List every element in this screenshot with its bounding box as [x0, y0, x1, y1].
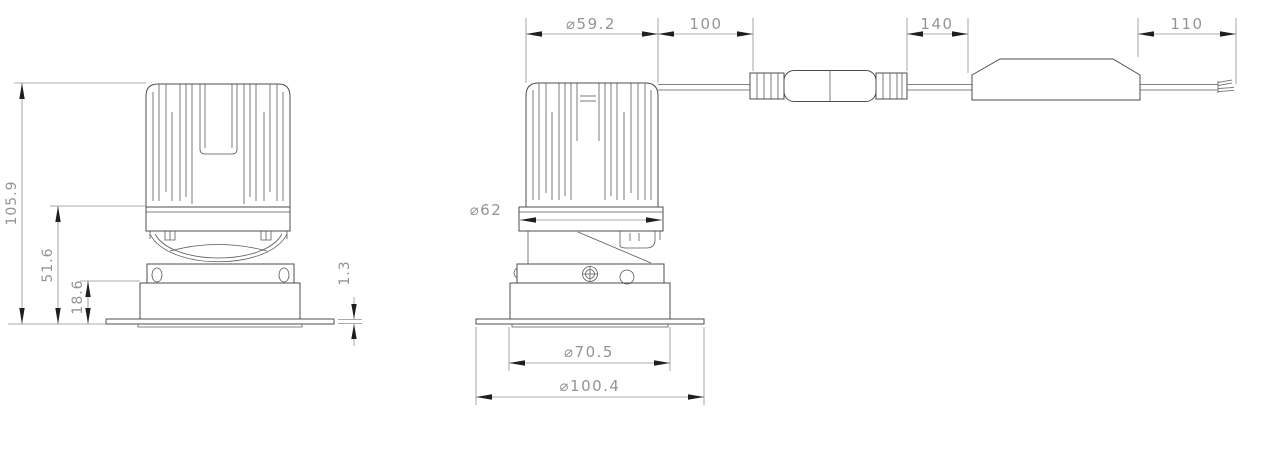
dim-output-lead: 110 [1170, 15, 1203, 33]
dim-body-diameter: ⌀62 [470, 201, 503, 219]
front-view [106, 84, 334, 327]
side-band [519, 207, 663, 231]
driver-box [972, 59, 1140, 100]
technical-drawing: ⌀59.2 100 140 110 105.9 51.6 18.6 1.3 ⌀6… [0, 0, 1281, 468]
cable-connector [750, 71, 907, 102]
cable-and-driver [658, 59, 1234, 102]
dim-cutout-diameter: ⌀70.5 [564, 343, 614, 361]
dim-driver-lead: 140 [920, 15, 953, 33]
dim-overall-height: 105.9 [4, 180, 20, 225]
output-lead-wire [1140, 80, 1234, 93]
drawing-canvas: ⌀59.2 100 140 110 105.9 51.6 18.6 1.3 ⌀6… [0, 0, 1281, 468]
side-mount-plate [514, 264, 664, 284]
side-flange [476, 319, 704, 324]
front-flange [106, 319, 334, 324]
side-heatsink-fins [533, 83, 651, 200]
dim-heatsink-diameter: ⌀59.2 [566, 15, 616, 33]
front-band [146, 207, 290, 231]
dimension-labels: ⌀59.2 100 140 110 105.9 51.6 18.6 1.3 ⌀6… [4, 15, 1204, 395]
side-gimbal [528, 231, 660, 264]
side-plate-hole [620, 270, 634, 284]
dim-flange-thickness: 1.3 [337, 260, 353, 285]
dimension-arrows [19, 31, 1236, 399]
dim-recess-depth: 18.6 [70, 279, 86, 314]
dim-fixture-lead: 100 [689, 15, 722, 33]
driver-lead-wire [907, 85, 972, 91]
front-spring-clip-left [152, 268, 162, 282]
side-view [476, 83, 704, 327]
side-trim [476, 283, 704, 327]
front-mount-plate [147, 264, 294, 283]
fixture-lead-wire [658, 85, 750, 91]
front-trim [106, 283, 334, 327]
dim-body-height: 51.6 [40, 247, 56, 282]
dimension-lines [8, 18, 1236, 405]
front-reflector [150, 231, 287, 262]
front-spring-clip-right [279, 268, 289, 282]
front-heatsink-outline [146, 84, 290, 207]
dim-flange-diameter: ⌀100.4 [560, 377, 621, 395]
front-heatsink-fins [153, 84, 283, 204]
